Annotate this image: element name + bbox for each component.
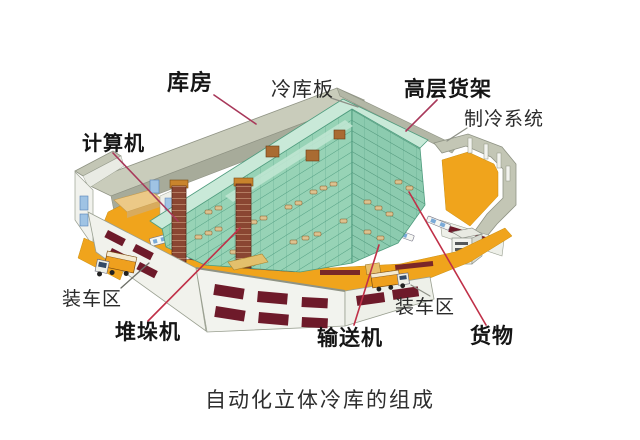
label-huowu: 货物 <box>470 326 514 347</box>
label-zhilengxitong: 制冷系统 <box>464 110 544 129</box>
label-jisuanji: 计算机 <box>82 134 145 154</box>
leader-kufang <box>214 95 256 124</box>
label-shusongji: 输送机 <box>317 328 383 349</box>
label-lengkuban: 冷库板 <box>271 80 334 100</box>
label-gaocenghuojia: 高层货架 <box>404 79 492 100</box>
label-zhuangchequ-right: 装车区 <box>395 298 455 317</box>
warehouse-illustration <box>0 0 640 440</box>
label-duiduoji: 堆垛机 <box>115 322 181 343</box>
label-zhuangchequ-left: 装车区 <box>62 290 122 309</box>
label-kufang: 库房 <box>167 72 213 94</box>
leader-gaocenghuojia <box>406 100 437 131</box>
diagram-caption: 自动化立体冷库的组成 <box>0 384 640 414</box>
diagram-canvas: 库房 冷库板 高层货架 制冷系统 计算机 装车区 堆垛机 输送机 装车区 货物 … <box>0 0 640 440</box>
